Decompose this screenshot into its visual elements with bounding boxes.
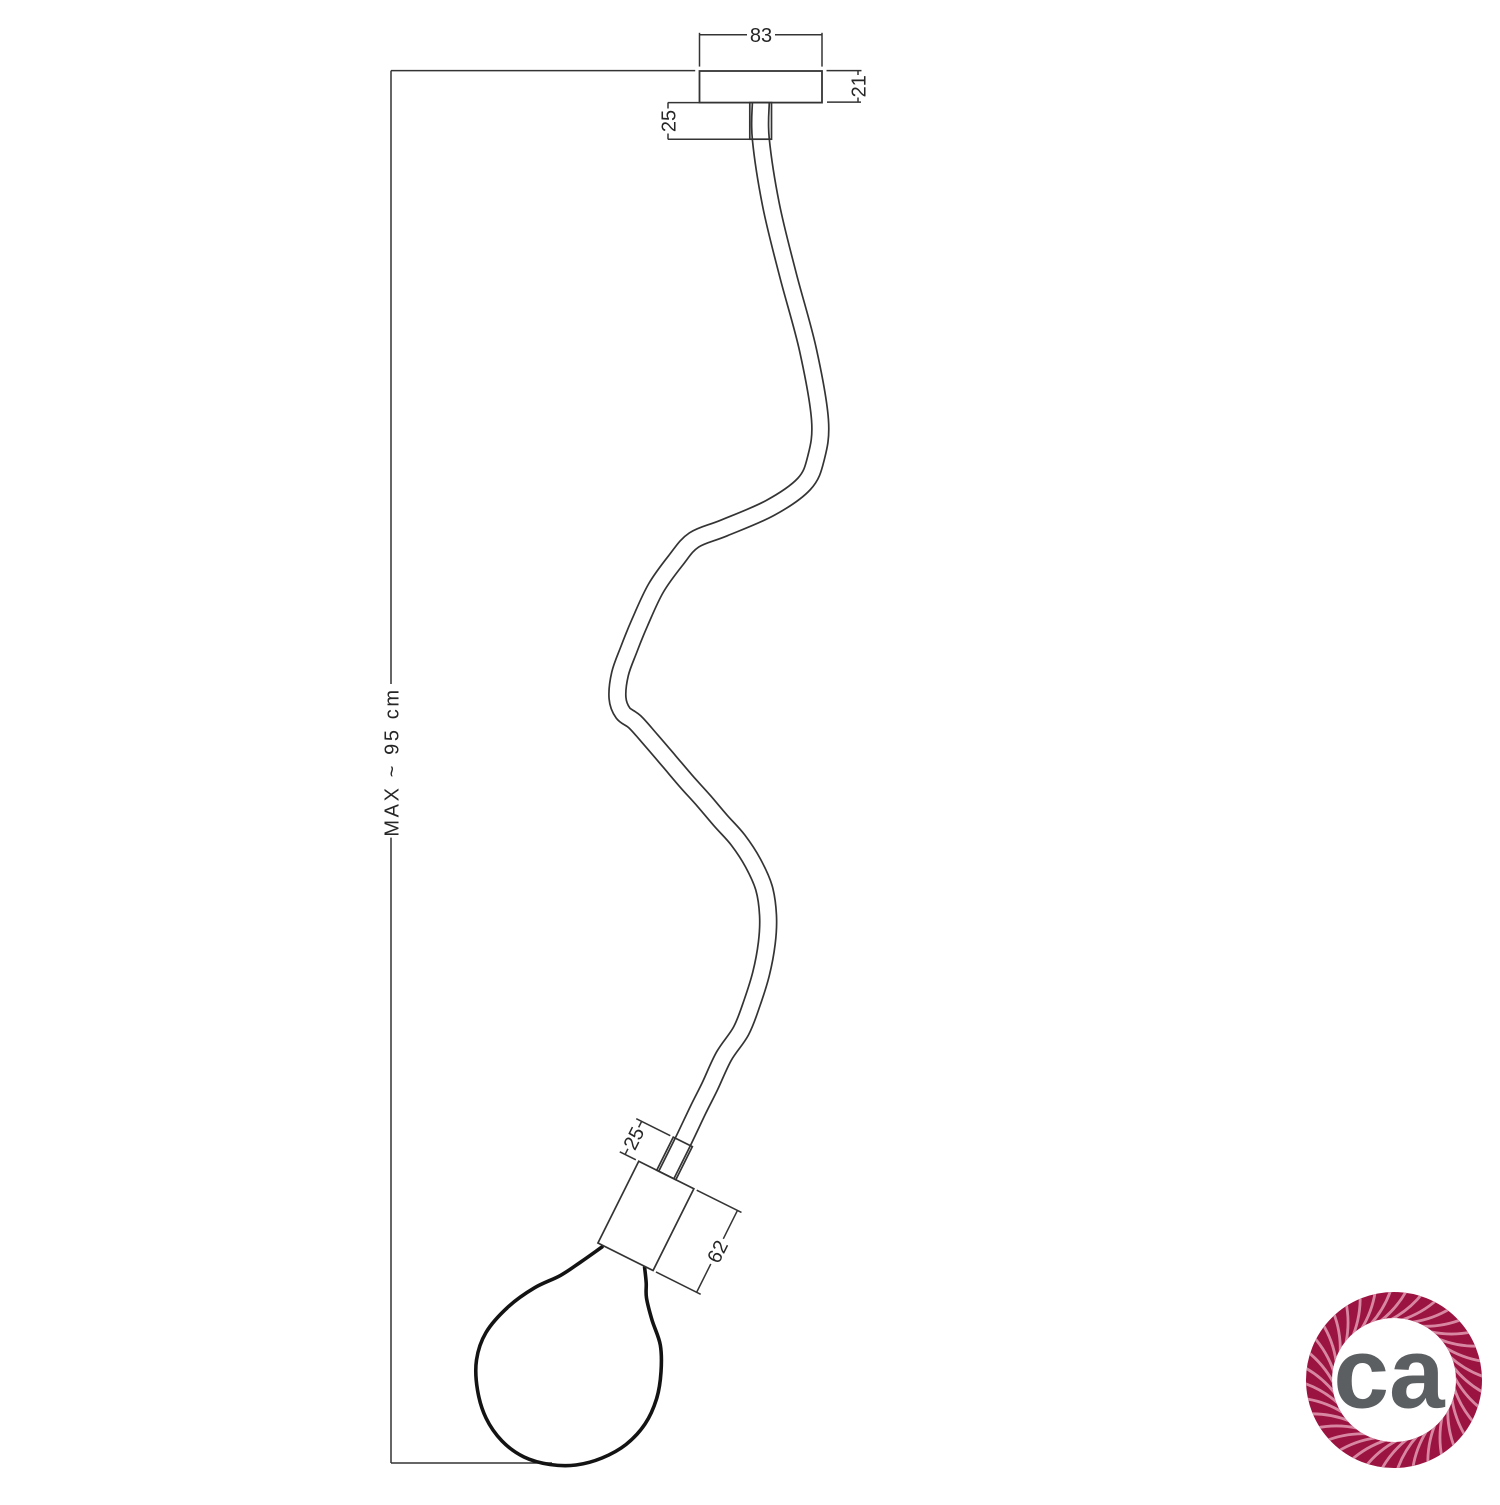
svg-text:62: 62 [703, 1237, 733, 1267]
svg-text:ca: ca [1333, 1318, 1446, 1430]
svg-text:25: 25 [620, 1124, 650, 1154]
svg-text:21: 21 [848, 75, 870, 97]
svg-text:25: 25 [658, 110, 680, 132]
svg-text:83: 83 [750, 25, 772, 47]
svg-text:MAX ~ 95 cm: MAX ~ 95 cm [381, 687, 403, 836]
